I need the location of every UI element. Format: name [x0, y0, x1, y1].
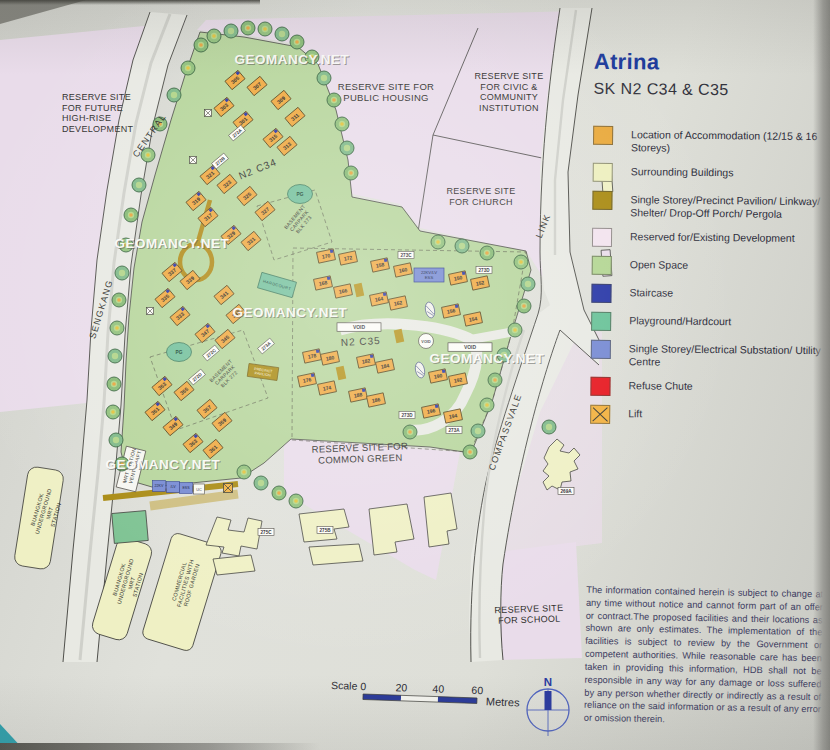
scale-tick-0: 0 — [360, 680, 366, 692]
watermark: GEOMANCY.NETGEOMANCY.NET — [106, 457, 222, 473]
existing-block-275B-a — [299, 509, 349, 542]
legend-item: Surrounding Buildings — [593, 163, 829, 184]
facility-pg: PG — [167, 343, 192, 362]
facility-ucbox: UC — [194, 484, 205, 494]
legend-label: Staircase — [629, 284, 673, 299]
facility-ess: 22KV/LVESS — [414, 268, 444, 282]
svg-text:ESS: ESS — [182, 486, 190, 490]
existing-block-275C-b — [213, 555, 255, 575]
tree-icon — [275, 27, 289, 41]
legend-item: Open Space — [592, 256, 828, 277]
tree-icon — [403, 425, 417, 439]
legend-swatch — [590, 377, 610, 396]
svg-text:VOID: VOID — [421, 340, 431, 344]
scale-unit: Metres — [486, 695, 521, 708]
legend-swatch — [590, 405, 610, 424]
svg-text:UC: UC — [196, 488, 202, 492]
tree-icon — [289, 494, 303, 508]
legend-swatch — [591, 312, 611, 331]
watermark: GEOMANCY.NETGEOMANCY.NET — [115, 236, 231, 252]
map-label-reserve-civic: RESERVE SITEFOR CIVIC &COMMUNITYINSTITUT… — [475, 71, 544, 113]
legend-label: Single Storey/Electrical Substation/ Uti… — [629, 340, 827, 370]
svg-text:PG: PG — [297, 192, 304, 197]
tree-icon — [224, 24, 238, 38]
photo-bottom-edge — [0, 743, 320, 750]
tree-icon — [167, 88, 181, 102]
tree-icon — [110, 321, 124, 335]
existing-block-275B-b — [309, 544, 363, 565]
tree-icon — [108, 349, 122, 363]
tree-icon — [455, 239, 469, 253]
svg-text:GEOMANCY.NET: GEOMANCY.NET — [430, 351, 545, 366]
tree-icon — [521, 277, 535, 291]
label-chip-273D: 273D — [399, 411, 415, 418]
svg-text:RESERVE SITEFOR CIVIC &COMMUNI: RESERVE SITEFOR CIVIC &COMMUNITYINSTITUT… — [475, 71, 544, 113]
page-title: Atrina — [594, 49, 830, 77]
tree-icon — [542, 420, 556, 434]
svg-text:269A: 269A — [561, 489, 573, 494]
lift-icon — [224, 484, 233, 493]
tree-icon — [109, 433, 123, 447]
scale-tick-3: 60 — [471, 684, 483, 696]
legend-item: Location of Accommodation (12/15 & 16 St… — [593, 126, 829, 157]
tree-icon — [488, 373, 502, 387]
scale-bar: Scale 0 20 40 60 Metres — [331, 679, 521, 709]
tree-icon — [254, 476, 268, 490]
legend-label: Single Storey/Precinct Pavilion/ Linkway… — [630, 191, 828, 221]
svg-text:275B: 275B — [320, 528, 332, 533]
svg-text:275C: 275C — [261, 530, 273, 535]
svg-text:273D: 273D — [402, 413, 414, 418]
legend-swatch — [593, 126, 613, 145]
tree-icon — [508, 323, 522, 337]
tree-icon — [241, 21, 255, 35]
map-label-reserve-public: RESERVE SITE FORPUBLIC HOUSING — [338, 81, 434, 103]
svg-text:273C: 273C — [401, 253, 413, 258]
tree-icon — [517, 299, 531, 313]
legend-label: Lift — [628, 405, 642, 420]
svg-text:RESERVE SITEFOR SCHOOL: RESERVE SITEFOR SCHOOL — [494, 603, 564, 626]
tree-icon — [340, 141, 354, 155]
legend-swatch — [592, 228, 612, 247]
map-label-reserve-common: RESERVE SITE FORCOMMON GREEN — [311, 440, 408, 466]
tree-icon — [115, 266, 129, 280]
svg-text:PG: PG — [176, 350, 183, 355]
lift-marker-icon — [190, 157, 197, 164]
label-chip-273D: 273D — [476, 266, 492, 273]
watermark: GEOMANCY.NETGEOMANCY.NET — [430, 351, 546, 367]
legend-label: Playground/Hardcourt — [629, 312, 731, 328]
legend-item: Single Storey/Electrical Substation/ Uti… — [591, 340, 827, 371]
facility-pg: PG — [288, 185, 313, 204]
disclaimer-text: The information contained herein is subj… — [584, 584, 824, 730]
lift-marker-icon — [147, 308, 154, 315]
legend-swatch — [591, 284, 611, 303]
tree-icon — [317, 71, 331, 85]
legend-item: Refuse Chute — [590, 377, 826, 398]
compass: N — [527, 676, 569, 736]
svg-text:GEOMANCY.NET: GEOMANCY.NET — [106, 457, 221, 472]
scanned-site-plan-page: 3053073033093013113153133213233193253173… — [0, 0, 830, 750]
tree-icon — [181, 61, 195, 75]
legend-label: Refuse Chute — [628, 377, 692, 393]
legend-swatch — [591, 340, 611, 359]
reserve-area-school — [498, 542, 582, 660]
label-chip-269A: 269A — [558, 487, 574, 494]
map-label-cluster-n2c35: N2 C35 — [341, 335, 381, 348]
scale-tick-2: 40 — [432, 682, 444, 694]
facility-essSmall: 22KV — [153, 481, 166, 492]
svg-text:N2 C35: N2 C35 — [341, 335, 381, 348]
svg-text:GEOMANCY.NET: GEOMANCY.NET — [233, 305, 348, 320]
tree-icon — [237, 465, 251, 479]
tree-icon — [112, 293, 126, 307]
tree-icon — [107, 377, 121, 391]
watermark: GEOMANCY.NETGEOMANCY.NET — [235, 52, 351, 68]
legend-swatch — [593, 163, 613, 182]
svg-text:273D: 273D — [479, 268, 491, 273]
label-chip-273C: 273C — [398, 251, 414, 258]
tree-icon — [124, 208, 138, 222]
tree-icon — [344, 166, 358, 180]
compass-needle — [545, 691, 552, 710]
legend-item: Reserved for/Existing Development — [592, 228, 828, 249]
legend-item: Staircase — [591, 284, 827, 305]
tree-icon — [335, 117, 349, 131]
tree-icon — [471, 424, 485, 438]
map-label-reserve-church: RESERVE SITEFOR CHURCH — [447, 186, 516, 207]
svg-text:RESERVE SITE FORCOMMON GREEN: RESERVE SITE FORCOMMON GREEN — [311, 440, 408, 466]
svg-text:GEOMANCY.NET: GEOMANCY.NET — [235, 52, 350, 67]
tree-icon — [106, 405, 120, 419]
tree-icon — [327, 93, 341, 107]
legend-swatch — [592, 191, 612, 210]
legend-label: Location of Accommodation (12/15 & 16 St… — [631, 126, 829, 156]
photo-right-edge — [813, 0, 830, 750]
legend-label: Open Space — [630, 256, 689, 272]
tree-icon — [290, 35, 304, 49]
tree-icon — [132, 178, 146, 192]
lift-marker-icon — [205, 110, 212, 117]
legend-label: Surrounding Buildings — [631, 163, 734, 179]
label-chip-275B: 275B — [317, 526, 333, 533]
label-chip-273A: 273A — [446, 426, 462, 433]
svg-text:273A: 273A — [449, 428, 461, 433]
facility-essSmall: ESS — [180, 483, 193, 494]
tree-icon — [272, 486, 286, 500]
tree-icon — [480, 246, 494, 260]
label-chip-275C: 275C — [258, 528, 274, 535]
svg-text:VOID: VOID — [464, 344, 477, 350]
svg-text:22KV: 22KV — [155, 484, 164, 488]
tree-icon — [480, 398, 494, 412]
watermark: GEOMANCY.NETGEOMANCY.NET — [233, 305, 349, 321]
legend-label: Reserved for/Existing Development — [630, 228, 795, 245]
legend-item: Lift — [590, 405, 826, 426]
tree-icon — [463, 445, 477, 459]
legend-items: Location of Accommodation (12/15 & 16 St… — [590, 126, 829, 427]
map-label-reserve-school: RESERVE SITEFOR SCHOOL — [494, 603, 564, 626]
tree-icon — [194, 38, 208, 52]
svg-text:RESERVE SITE FORPUBLIC HOUSING: RESERVE SITE FORPUBLIC HOUSING — [338, 81, 434, 103]
tree-icon — [207, 29, 221, 43]
page-subtitle: SK N2 C34 & C35 — [594, 80, 830, 100]
scale-label: Scale — [331, 679, 358, 692]
scale-tick-1: 20 — [395, 681, 407, 693]
svg-text:VOID: VOID — [353, 324, 366, 330]
existing-block-near-road — [424, 493, 457, 547]
facility-voidcircle: VOID — [419, 334, 434, 349]
compass-north: N — [544, 676, 552, 688]
facility-voidbar: VOID — [337, 323, 381, 332]
legend-swatch — [592, 256, 612, 275]
tree-icon — [258, 22, 272, 36]
legend-item: Single Storey/Precinct Pavilion/ Linkway… — [592, 191, 828, 222]
tree-icon — [431, 235, 445, 249]
tree-icon — [514, 255, 528, 269]
playground-square — [112, 511, 148, 544]
svg-text:GEOMANCY.NET: GEOMANCY.NET — [115, 236, 230, 251]
svg-text:RESERVE SITEFOR CHURCH: RESERVE SITEFOR CHURCH — [447, 186, 516, 207]
legend-item: Playground/Hardcourt — [591, 312, 827, 333]
legend-panel: Atrina SK N2 C34 & C35 Location of Accom… — [590, 49, 830, 436]
photo-top-edge — [0, 0, 260, 5]
svg-text:/LV: /LV — [170, 485, 176, 489]
facility-essSmall: /LV — [167, 482, 180, 493]
